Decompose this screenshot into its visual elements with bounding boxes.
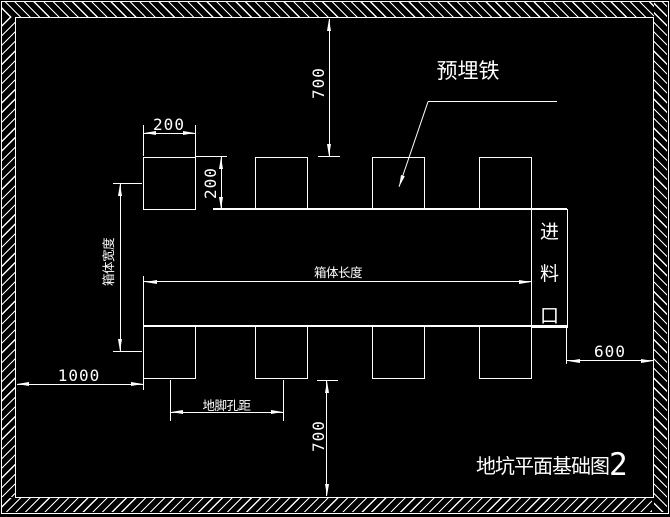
drawing-title: 地坑平面基础图 2	[476, 452, 628, 479]
feed-port-label: 进 料 口	[531, 209, 568, 327]
feed-port-char-3: 口	[540, 295, 559, 337]
drawing-title-text: 地坑平面基础图	[476, 453, 609, 479]
anchor-pad-top-2	[255, 157, 308, 210]
dim-pad-width-label: 200	[141, 115, 197, 134]
arrowhead-left	[145, 280, 157, 284]
hatch-band-left	[2, 17, 15, 497]
extension-line	[283, 380, 284, 421]
dim-anchor-hole-spacing-label: 地脚孔距	[184, 395, 269, 414]
body-bottom-line	[143, 325, 567, 327]
hatch-band-bottom	[2, 498, 652, 512]
hatch-band-right	[654, 2, 667, 512]
dim-right-offset-label: 600	[580, 342, 640, 361]
dim-pad-height-label: 200	[186, 159, 234, 207]
dim-bottom-offset-label: 700	[294, 412, 342, 460]
hatch-band-top	[2, 2, 654, 17]
extension-line	[113, 351, 142, 352]
dimension-line	[144, 281, 531, 282]
arrowhead-left	[17, 382, 29, 386]
arrowhead-down	[327, 144, 331, 156]
extension-line	[143, 276, 144, 390]
dim-box-width-label: 箱体宽度	[75, 230, 139, 294]
arrowhead-down	[118, 339, 122, 351]
arrowhead-left	[171, 410, 183, 414]
arrowhead-right	[641, 359, 653, 363]
feed-port-left-stub	[531, 183, 533, 210]
anchor-pad-bottom-3	[372, 326, 425, 379]
drawing-title-number: 2	[609, 452, 628, 479]
arrowhead-up	[327, 19, 331, 31]
arrowhead-right	[519, 280, 531, 284]
feed-port-char-2: 料	[540, 253, 559, 295]
dim-top-offset-label: 700	[294, 59, 342, 107]
anchor-pad-bottom-1	[143, 326, 196, 379]
arrowhead-left	[568, 359, 580, 363]
feed-port-right-stub	[566, 327, 567, 364]
arrowhead-down	[325, 484, 329, 496]
dim-left-offset-label: 1000	[49, 366, 109, 385]
body-top-line	[213, 208, 567, 210]
arrowhead-right	[271, 410, 283, 414]
arrowhead-right	[131, 382, 143, 386]
extension-line	[170, 380, 171, 421]
leader-line-horizontal	[428, 101, 557, 102]
anchor-pad-bottom-2	[255, 326, 308, 379]
anchor-pad-bottom-4	[479, 326, 532, 379]
feed-port-char-1: 进	[540, 211, 559, 253]
embedded-iron-label: 预埋铁	[430, 55, 506, 85]
anchor-pad-top-4	[479, 157, 532, 210]
cad-foundation-drawing: 进 料 口 200 200 700 1000 箱体长度 箱体宽度 地脚孔距 7	[0, 0, 670, 517]
dim-box-length-label: 箱体长度	[296, 262, 380, 281]
arrowhead-up	[325, 381, 329, 393]
arrowhead-up	[118, 184, 122, 196]
